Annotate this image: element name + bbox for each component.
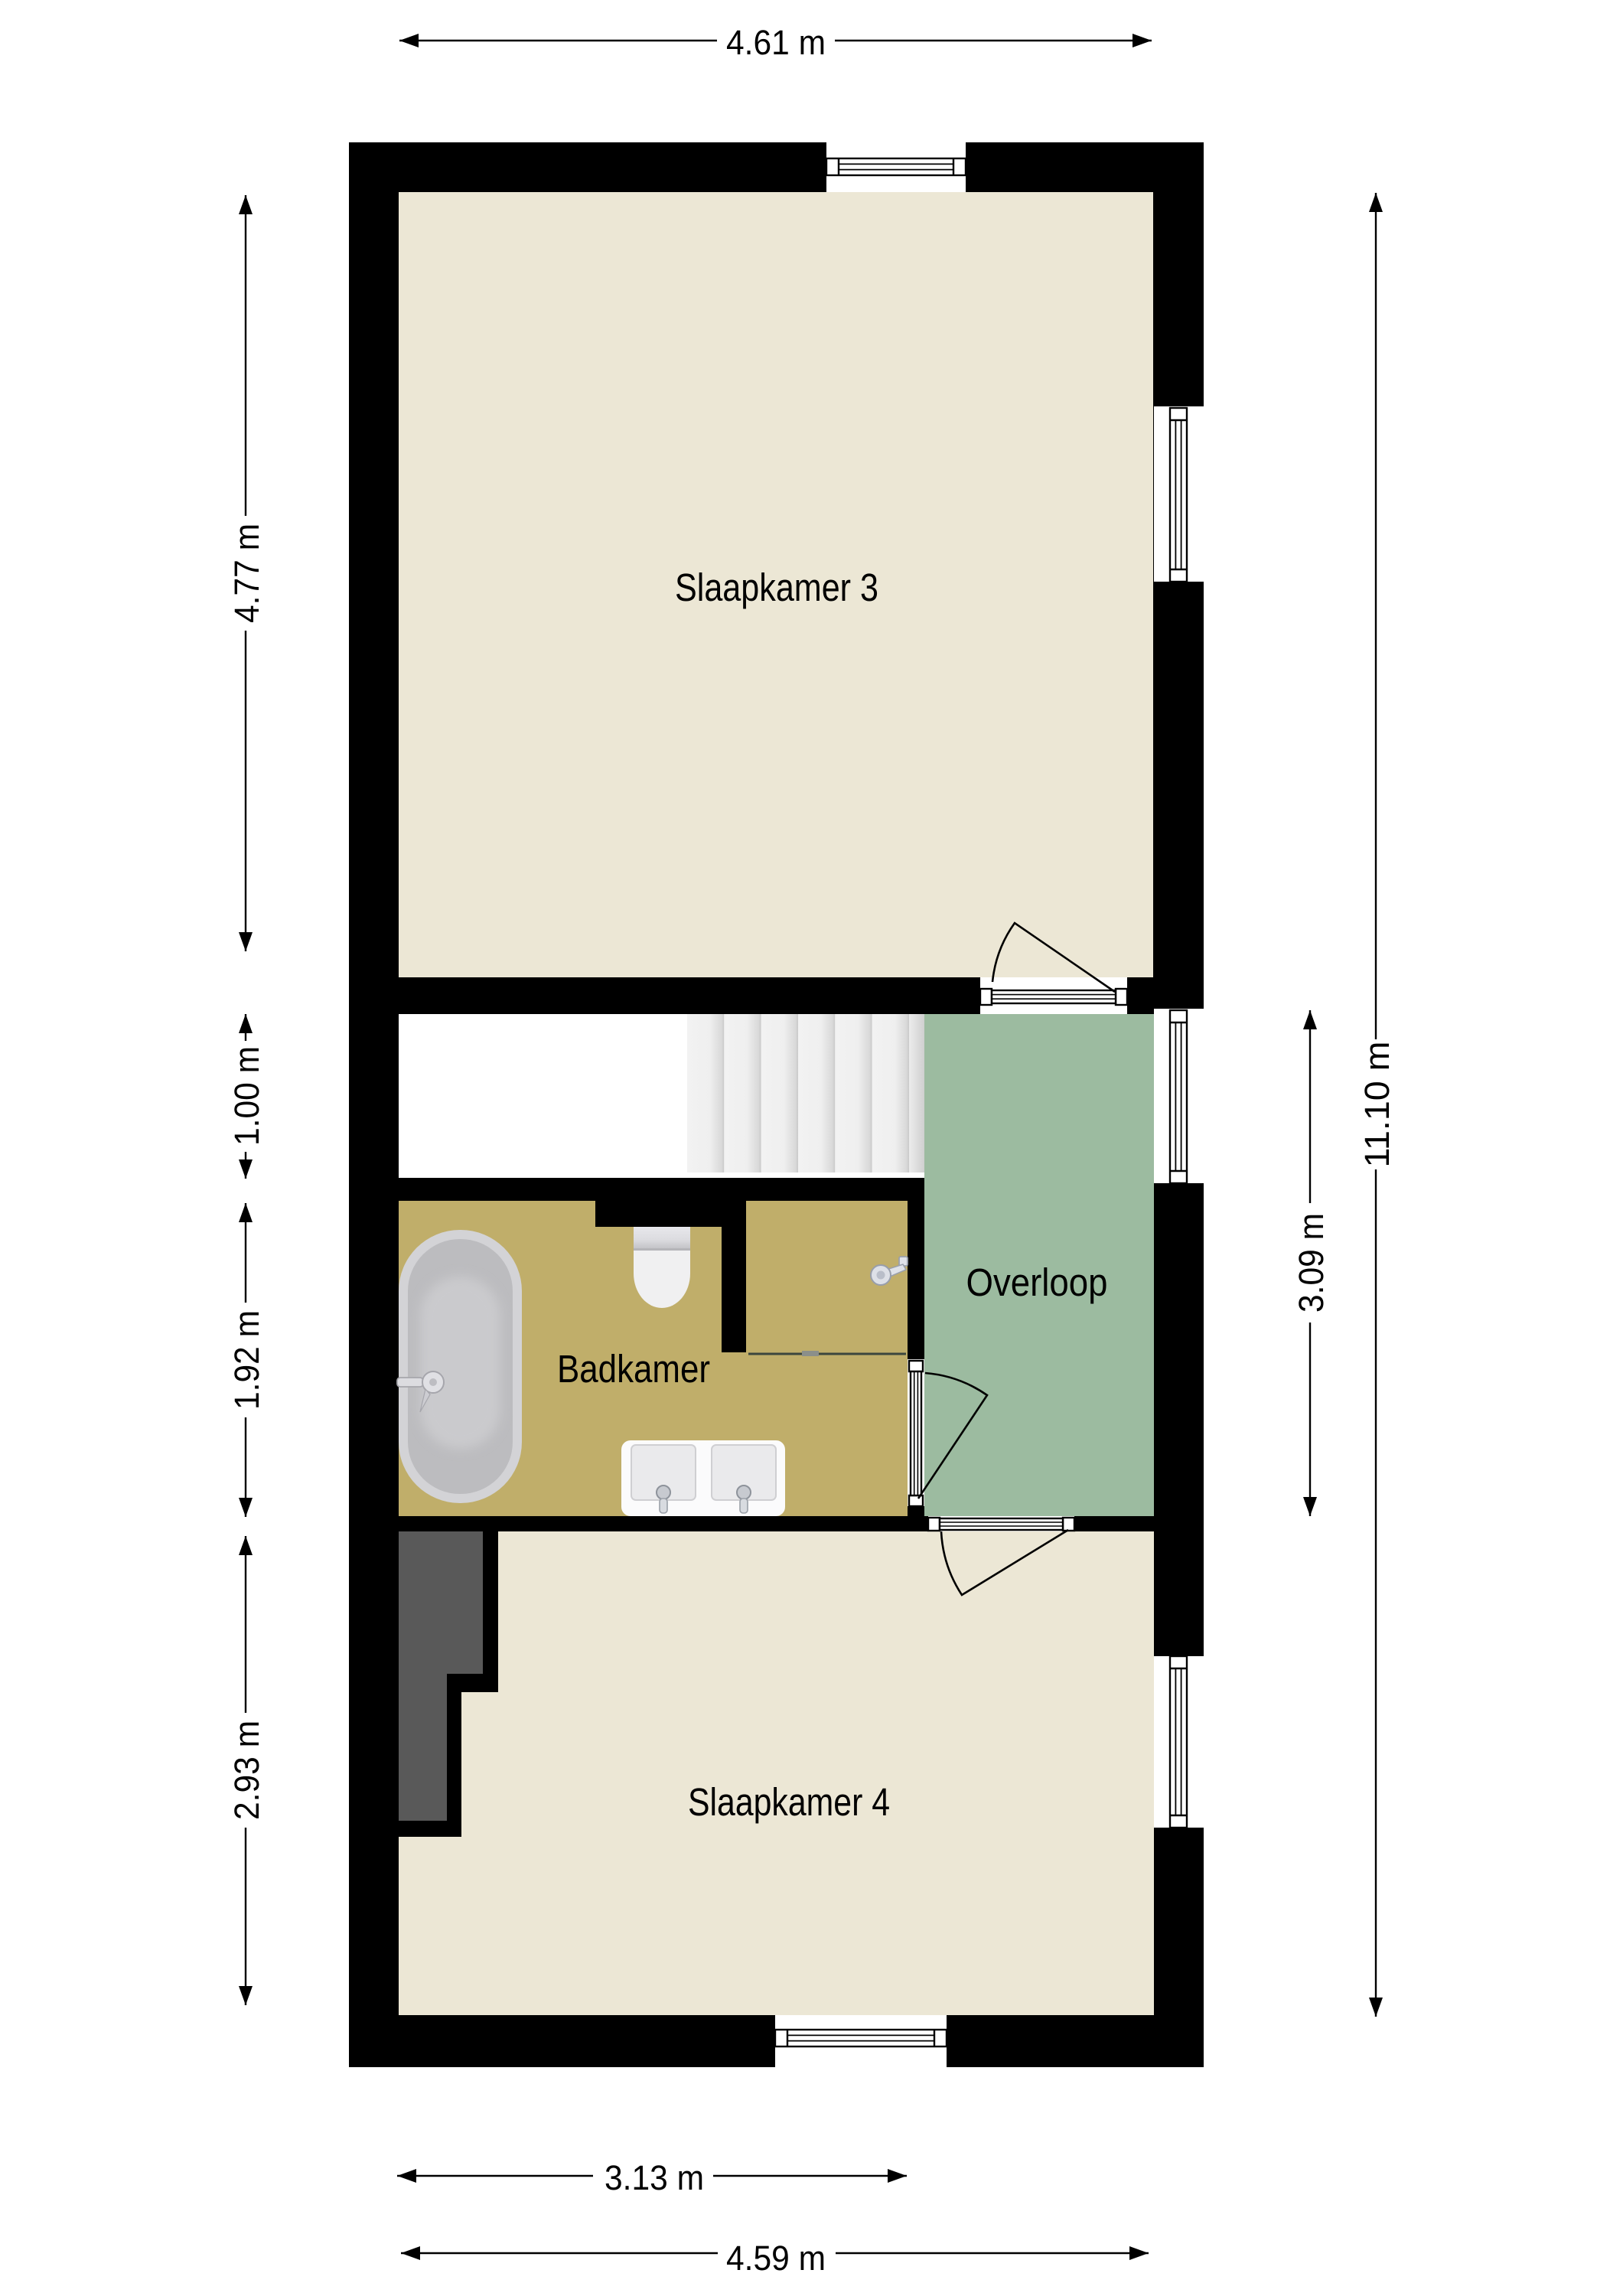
svg-text:1.00 m: 1.00 m — [227, 1046, 266, 1146]
svg-text:2.93 m: 2.93 m — [227, 1720, 266, 1820]
svg-text:4.59 m: 4.59 m — [726, 2239, 826, 2278]
svg-text:Slaapkamer 3: Slaapkamer 3 — [675, 566, 878, 609]
svg-text:1.92 m: 1.92 m — [227, 1310, 266, 1410]
svg-text:11.10 m: 11.10 m — [1357, 1042, 1396, 1168]
svg-text:4.77 m: 4.77 m — [227, 523, 266, 623]
svg-text:Badkamer: Badkamer — [557, 1347, 710, 1391]
svg-text:3.13 m: 3.13 m — [605, 2158, 704, 2197]
svg-text:4.61 m: 4.61 m — [726, 23, 826, 62]
svg-text:Overloop: Overloop — [966, 1261, 1108, 1304]
svg-text:Slaapkamer 4: Slaapkamer 4 — [688, 1780, 890, 1824]
svg-text:3.09 m: 3.09 m — [1292, 1213, 1331, 1313]
